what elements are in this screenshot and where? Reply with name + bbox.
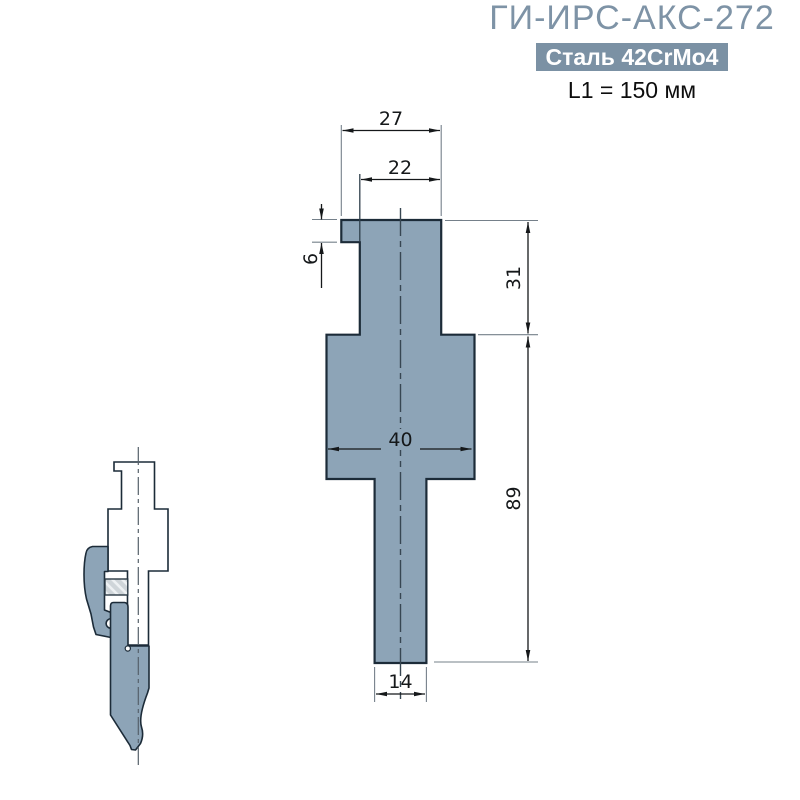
dim-label-31: 31 <box>503 266 525 290</box>
dim-label-40: 40 <box>388 429 412 451</box>
dim-label-14: 14 <box>388 671 412 693</box>
dimension-stem-width: 14 <box>376 671 425 696</box>
dim-label-6: 6 <box>300 253 322 265</box>
page: ГИ-ИРС-АКС-272 Сталь 42CrMo4 L1 = 150 мм <box>0 0 800 800</box>
assembly-view <box>84 447 168 768</box>
technical-drawing: 27 22 6 31 <box>0 0 800 800</box>
dim-label-22: 22 <box>388 157 412 179</box>
dimension-lower-height: 89 <box>503 337 530 662</box>
dim-label-27: 27 <box>379 108 403 130</box>
clamp-screw <box>105 579 128 595</box>
dimension-step-height: 6 <box>300 204 324 288</box>
dimension-upper-height: 31 <box>503 222 530 334</box>
dim-label-89: 89 <box>503 486 525 510</box>
main-view: 27 22 6 31 <box>300 108 538 702</box>
dimension-head-top-width: 27 <box>343 108 441 133</box>
dimension-head-width: 22 <box>361 157 440 182</box>
relief-hole <box>125 646 130 651</box>
